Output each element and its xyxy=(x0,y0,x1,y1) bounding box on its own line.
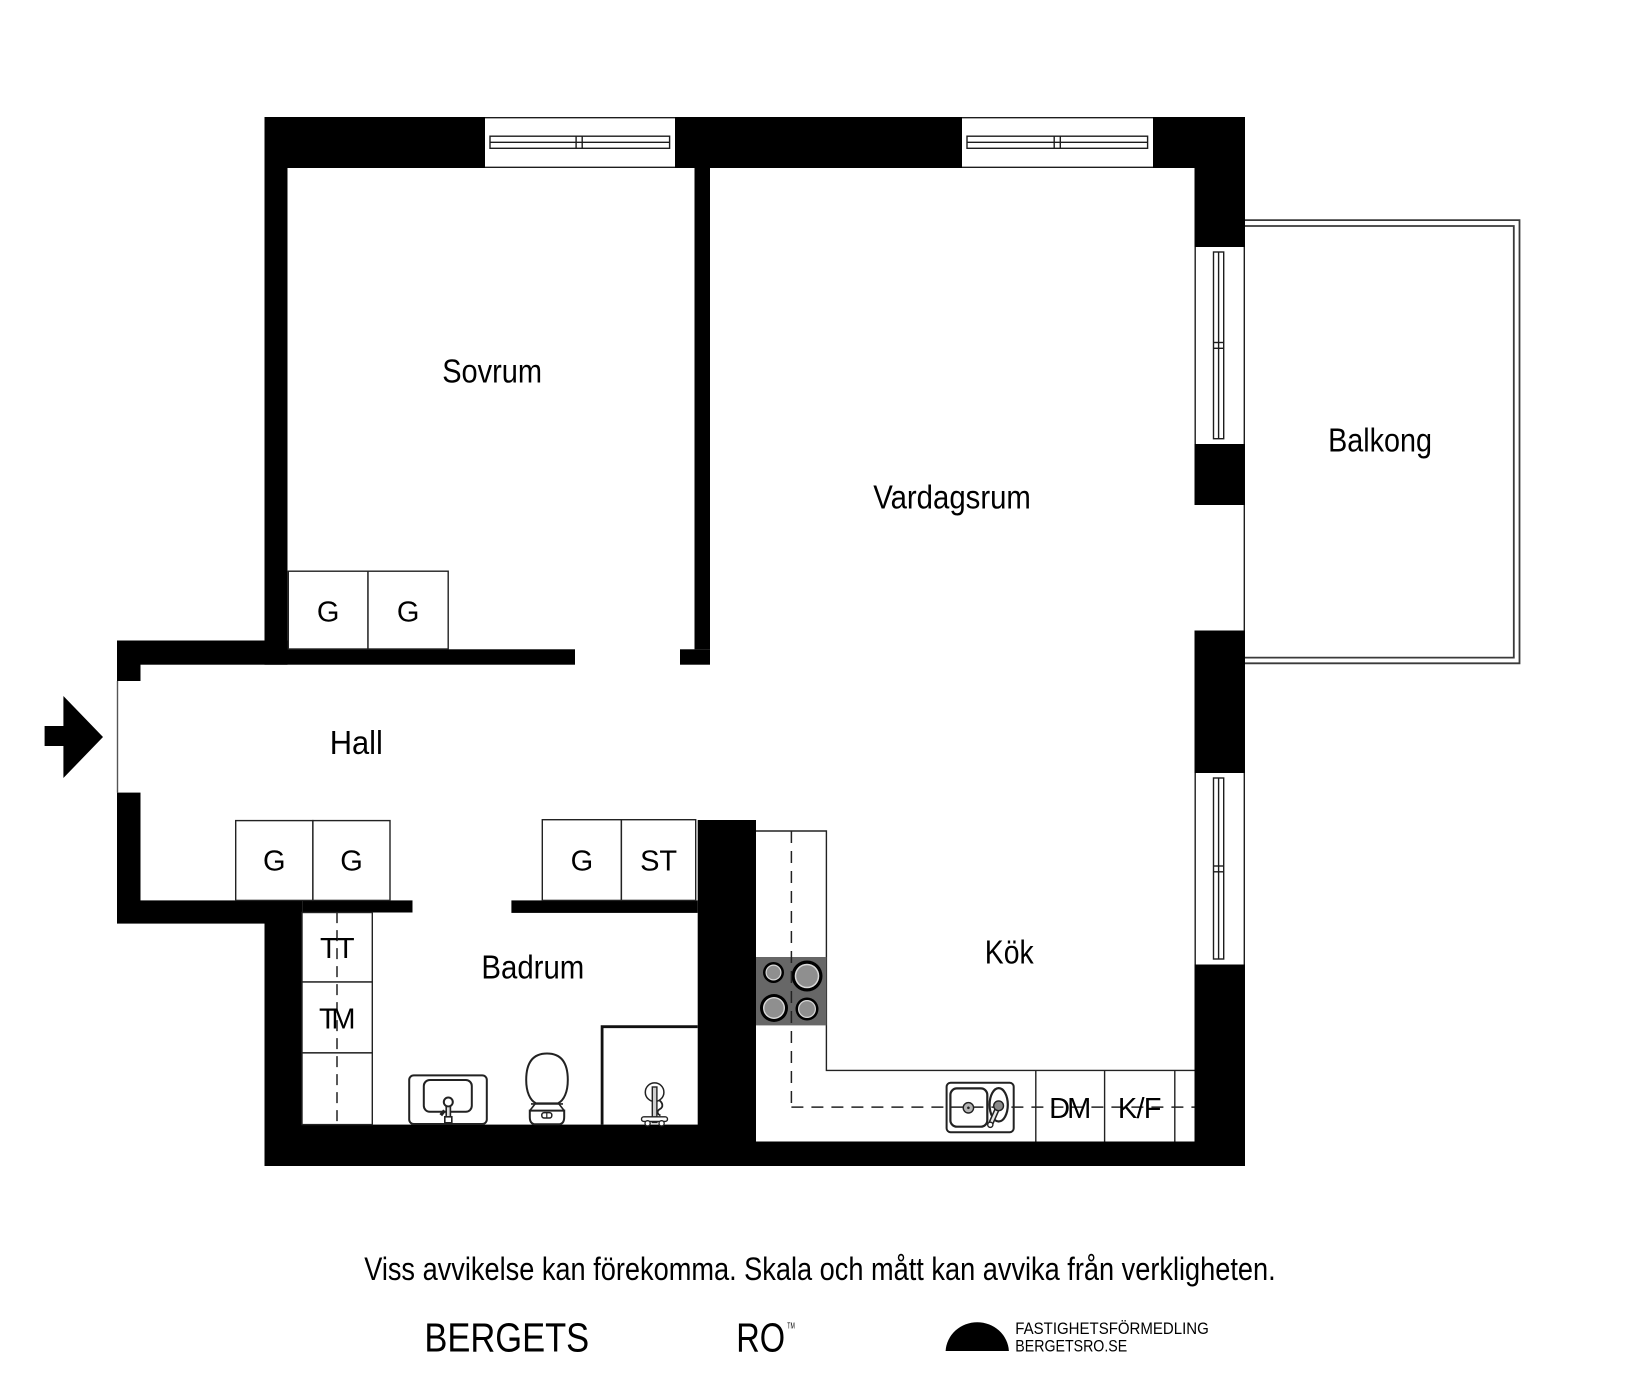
svg-text:G: G xyxy=(317,596,340,628)
svg-text:G: G xyxy=(397,596,420,628)
svg-text:G: G xyxy=(340,846,363,878)
svg-text:Badrum: Badrum xyxy=(481,949,584,986)
svg-text:Sovrum: Sovrum xyxy=(442,352,542,389)
svg-text:TT: TT xyxy=(320,933,355,965)
svg-text:TM: TM xyxy=(319,1003,356,1035)
svg-text:TM: TM xyxy=(787,1322,795,1331)
svg-text:ST: ST xyxy=(640,846,677,878)
svg-text:Balkong: Balkong xyxy=(1328,421,1432,458)
svg-text:Viss avvikelse kan förekomma.: Viss avvikelse kan förekomma. Skala och … xyxy=(364,1251,1275,1287)
svg-text:G: G xyxy=(571,846,594,878)
svg-text:Vardagsrum: Vardagsrum xyxy=(873,479,1031,516)
svg-text:DM: DM xyxy=(1049,1093,1091,1125)
svg-text:Kök: Kök xyxy=(985,934,1034,971)
svg-text:BERGETSRO.SE: BERGETSRO.SE xyxy=(1015,1338,1127,1356)
svg-text:BERGETS: BERGETS xyxy=(424,1314,589,1360)
svg-text:RO: RO xyxy=(736,1314,785,1360)
svg-text:K/F: K/F xyxy=(1118,1093,1162,1125)
svg-text:Hall: Hall xyxy=(330,724,383,761)
svg-text:FASTIGHETSFÖRMEDLING: FASTIGHETSFÖRMEDLING xyxy=(1015,1320,1209,1338)
svg-text:G: G xyxy=(263,846,286,878)
